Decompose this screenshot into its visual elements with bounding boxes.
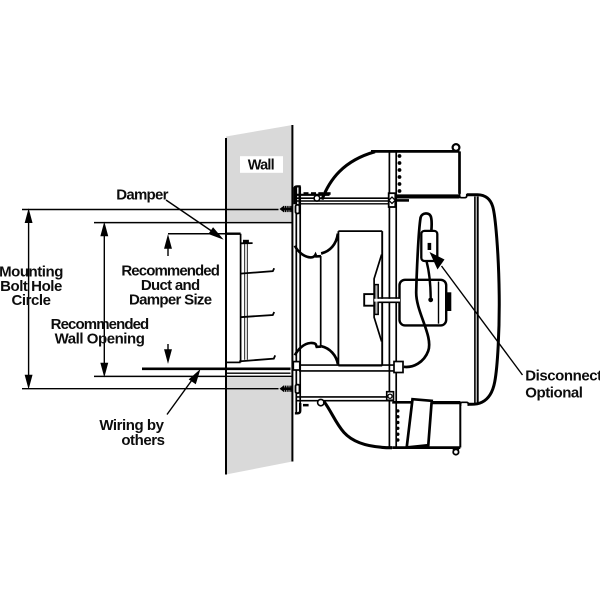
svg-text:Damper: Damper bbox=[116, 186, 168, 203]
svg-text:others: others bbox=[121, 432, 164, 449]
svg-text:Wall: Wall bbox=[248, 158, 274, 174]
svg-text:Wall Opening: Wall Opening bbox=[55, 331, 145, 348]
svg-text:Circle: Circle bbox=[12, 292, 51, 309]
svg-text:Disconnect: Disconnect bbox=[525, 368, 600, 385]
svg-text:Damper Size: Damper Size bbox=[129, 291, 212, 308]
svg-text:Optional: Optional bbox=[525, 385, 583, 402]
